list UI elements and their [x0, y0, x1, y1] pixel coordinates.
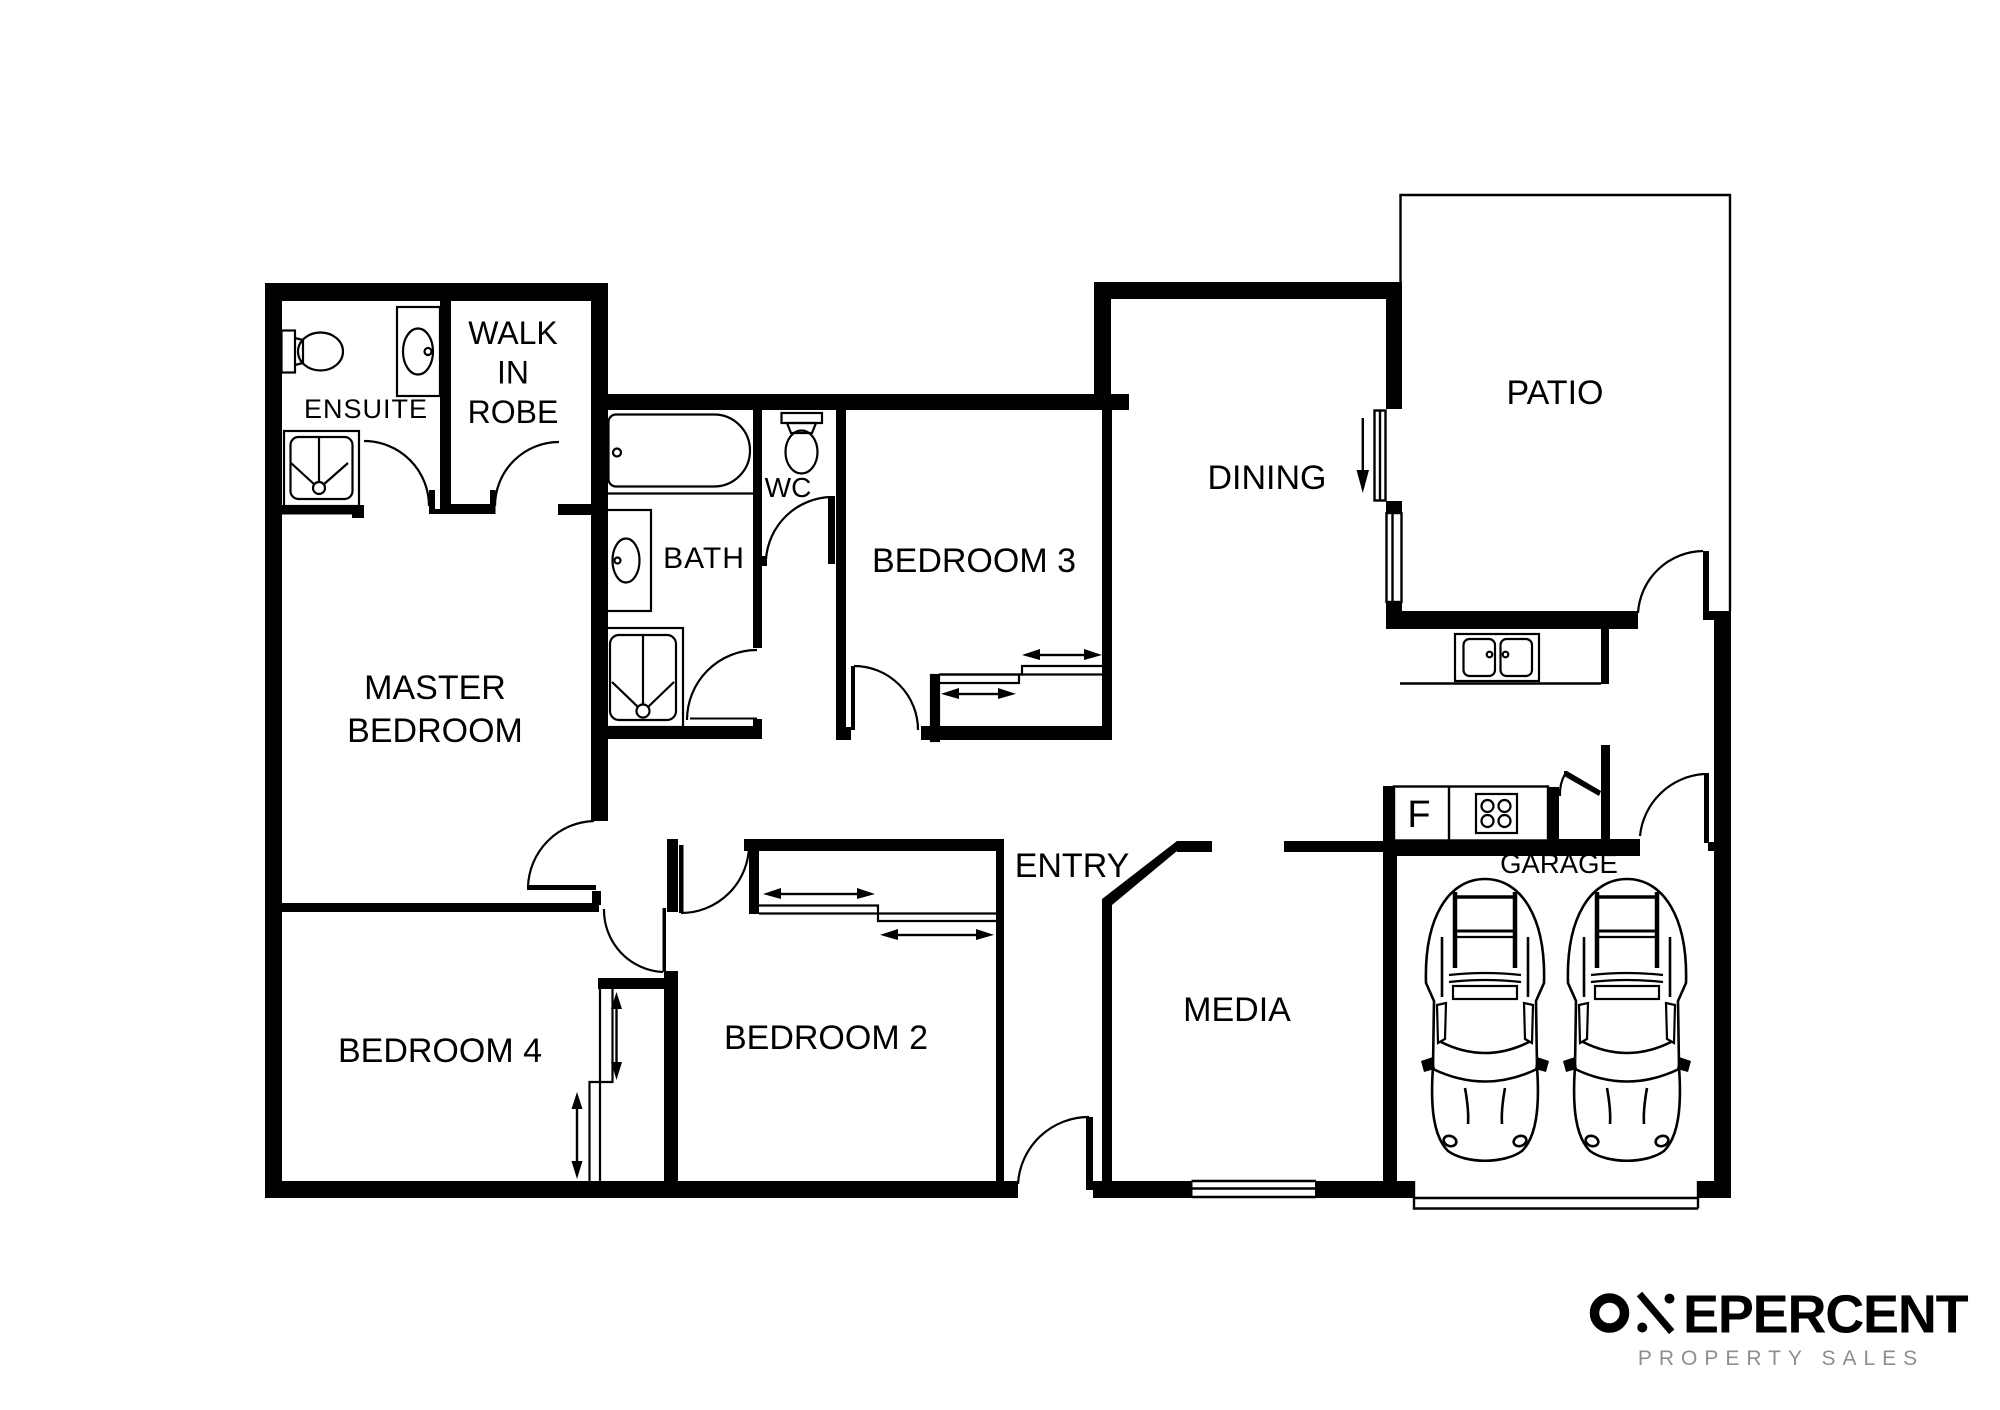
svg-text:BEDROOM 3: BEDROOM 3 [872, 542, 1076, 580]
svg-text:BEDROOM 4: BEDROOM 4 [338, 1032, 542, 1070]
svg-text:PROPERTY SALES: PROPERTY SALES [1638, 1347, 1924, 1370]
svg-text:F: F [1407, 794, 1430, 836]
svg-text:MEDIA: MEDIA [1183, 991, 1291, 1029]
svg-text:ENTRY: ENTRY [1015, 847, 1130, 885]
svg-text:BATH: BATH [663, 542, 745, 575]
svg-text:ENSUITE: ENSUITE [304, 394, 428, 424]
svg-text:PATIO: PATIO [1507, 374, 1604, 412]
svg-text:EPERCENT: EPERCENT [1683, 1285, 1969, 1345]
svg-text:MASTER: MASTER [364, 669, 506, 707]
svg-text:DINING: DINING [1208, 459, 1327, 497]
svg-text:IN: IN [497, 355, 529, 391]
svg-text:WALK: WALK [468, 315, 558, 351]
svg-text:ROBE: ROBE [468, 394, 559, 430]
svg-text:BEDROOM 2: BEDROOM 2 [724, 1019, 928, 1057]
svg-text:BEDROOM: BEDROOM [347, 712, 523, 750]
svg-text:WC: WC [765, 472, 812, 503]
svg-text:GARAGE: GARAGE [1500, 848, 1618, 879]
